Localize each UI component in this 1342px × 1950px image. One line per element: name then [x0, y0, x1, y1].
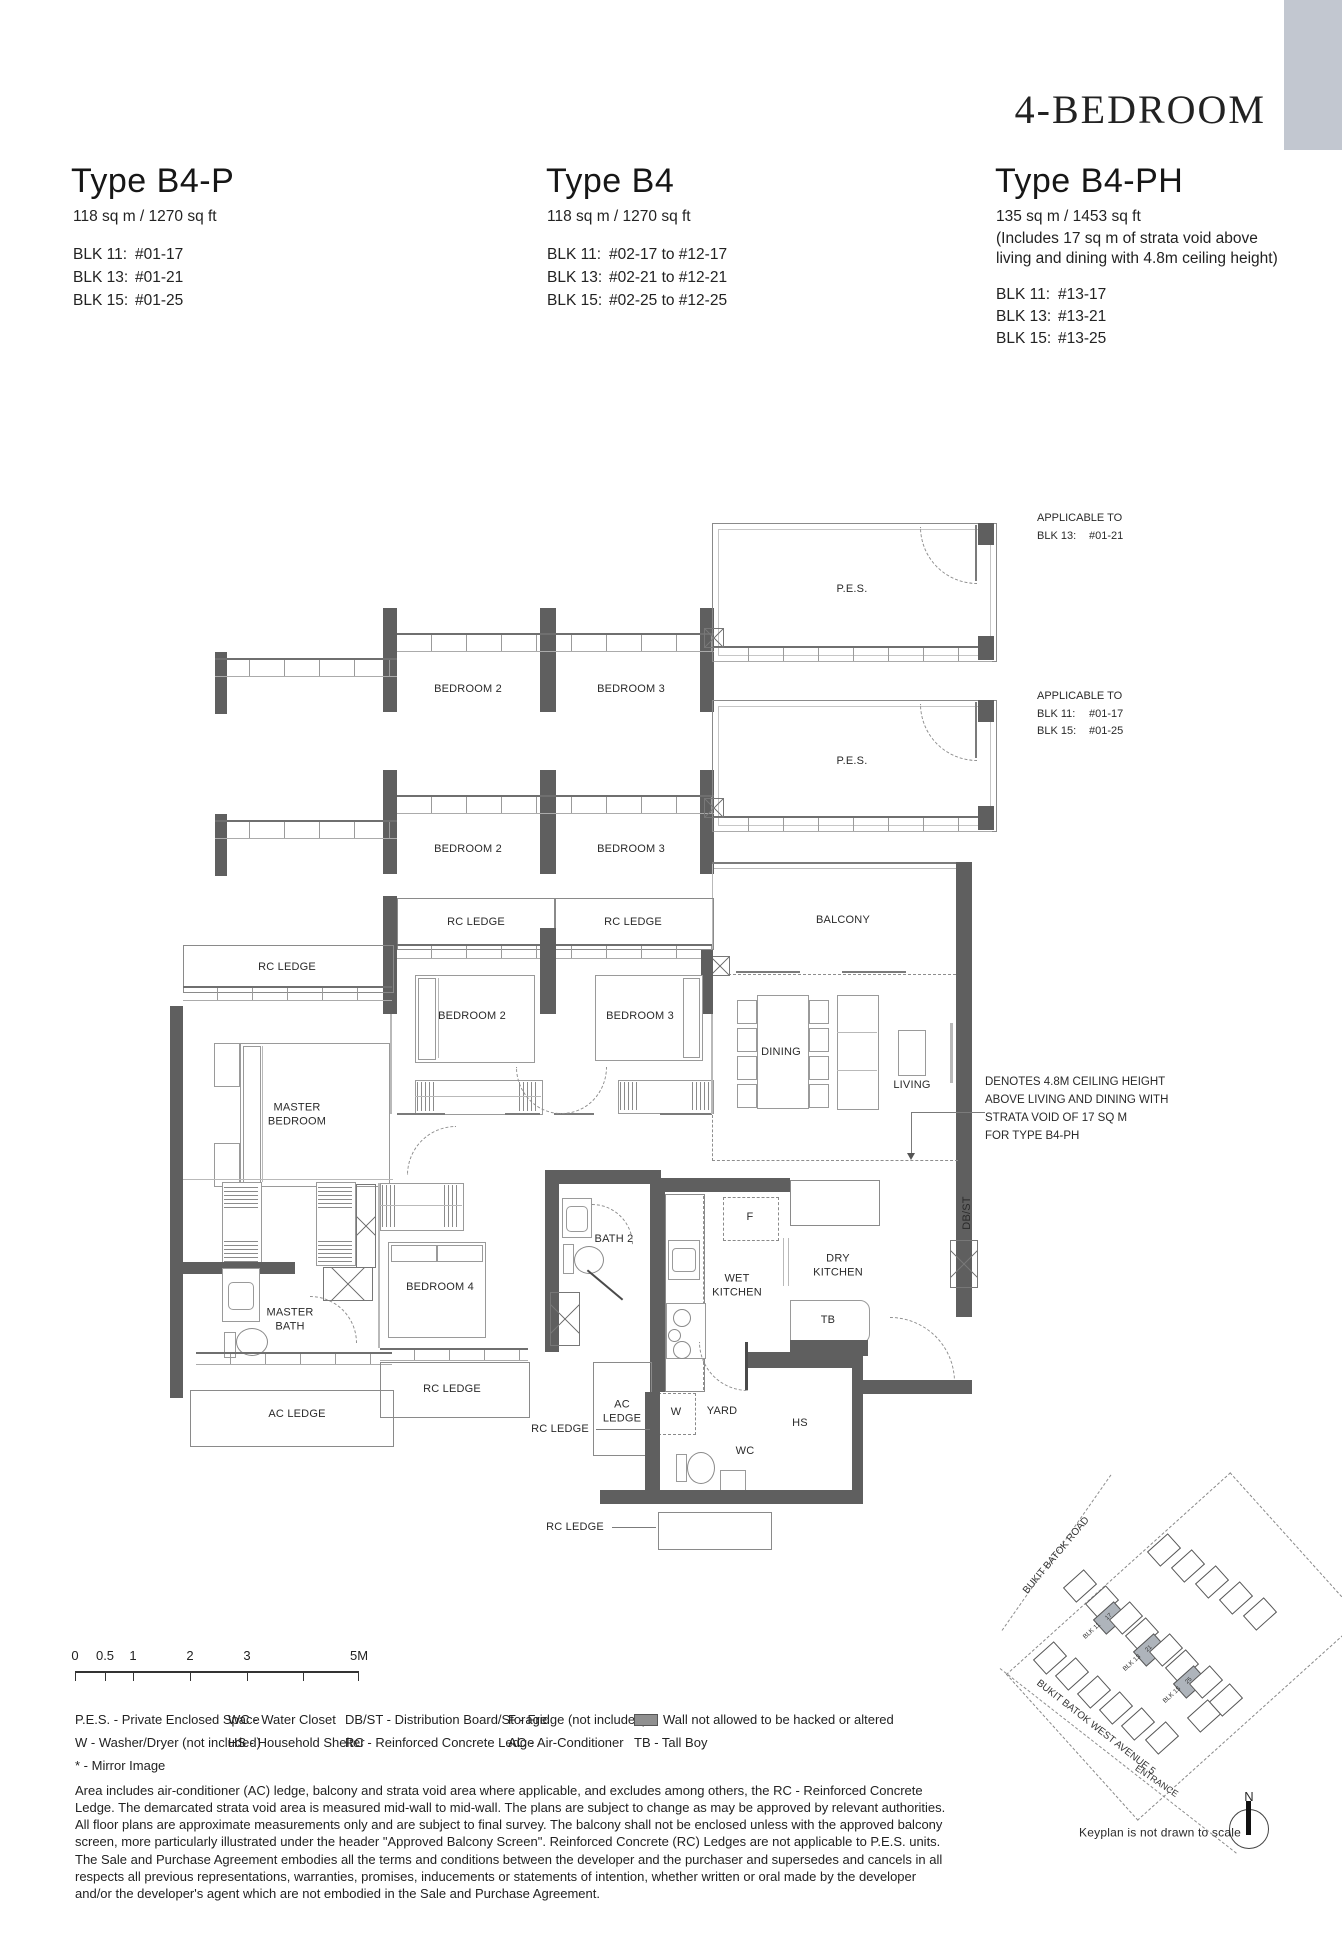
- leader-line: [596, 1429, 650, 1430]
- blk-line: BLK 13:#02-21 to #12-21: [547, 269, 727, 287]
- legend-item-rc: RC - Reinforced Concrete Ledge: [345, 1735, 534, 1750]
- wall-pillar: [540, 928, 556, 1014]
- unit-area-b4: 118 sq m / 1270 sq ft: [547, 208, 691, 226]
- wardrobe-hatch: [444, 1185, 460, 1227]
- sliding-door-panel: [736, 971, 800, 973]
- wall-stub: [978, 700, 994, 722]
- bed-pillow: [683, 978, 700, 1058]
- strata-void-line: [712, 1115, 713, 1161]
- window-band: [714, 816, 992, 832]
- room-label-pes: P.E.S.: [837, 755, 868, 769]
- room-label-master-bedroom: MASTER BEDROOM: [260, 1101, 334, 1129]
- blk-label: BLK 11:: [73, 246, 135, 264]
- label-ac-ledge: AC LEDGE: [268, 1408, 325, 1422]
- mirror-cabinet: [356, 1184, 376, 1268]
- hob-burner: [668, 1329, 681, 1342]
- side-table: [214, 1043, 240, 1087]
- legend-item-ac: AC - Air-Conditioner: [508, 1735, 624, 1750]
- sliding-door-panel: [842, 971, 906, 973]
- ceiling-note-line: DENOTES 4.8M CEILING HEIGHT: [985, 1076, 1165, 1088]
- sliding-door-line: [728, 974, 956, 975]
- blk-line: BLK 15:#13-25: [996, 330, 1106, 348]
- window-band: [215, 658, 397, 677]
- scale-tick: [105, 1671, 106, 1681]
- scale-tick: [190, 1671, 191, 1681]
- room-wall: [660, 1113, 712, 1115]
- scale-tick-label: 5M: [350, 1648, 368, 1663]
- wardrobe-hatch: [224, 1238, 258, 1262]
- toilet-tank: [563, 1244, 574, 1274]
- window-band: [215, 820, 397, 839]
- scale-tick: [133, 1671, 134, 1681]
- ceiling-note-line: STRATA VOID OF 17 SQ M: [985, 1112, 1127, 1124]
- window-band: [183, 986, 392, 1001]
- label-rc-ledge: RC LEDGE: [604, 916, 662, 930]
- room-label-bedroom3: BEDROOM 3: [597, 683, 665, 697]
- dbst-closet: [950, 1240, 978, 1288]
- label-rc-ledge: RC LEDGE: [546, 1521, 604, 1535]
- compass-needle-icon: [1246, 1801, 1251, 1835]
- interior-wall: [645, 1392, 660, 1502]
- coffee-table: [898, 1030, 926, 1076]
- room-label-wc: WC: [736, 1445, 755, 1459]
- label-rc-ledge: RC LEDGE: [531, 1423, 589, 1437]
- legend-item-fridge: F - Fridge (not included): [508, 1712, 647, 1727]
- wardrobe-hatch: [620, 1082, 638, 1110]
- unit-title-b4: Type B4: [546, 162, 674, 201]
- balcony-wall: [712, 862, 972, 864]
- room-wall: [183, 1179, 393, 1180]
- wall-stub: [978, 523, 994, 545]
- leader-arrow-icon: [907, 1153, 915, 1160]
- label-rc-ledge: RC LEDGE: [258, 961, 316, 975]
- dining-chair: [809, 1028, 829, 1052]
- hob-burner: [673, 1341, 691, 1359]
- label-ac-ledge: AC LEDGE: [599, 1398, 645, 1426]
- dining-chair: [809, 1056, 829, 1080]
- dining-chair: [737, 1000, 757, 1024]
- leader-line: [911, 1112, 912, 1156]
- dining-chair: [737, 1056, 757, 1080]
- bed-pillow: [243, 1046, 261, 1184]
- sofa-line: [837, 1032, 877, 1033]
- wall-line: [783, 1238, 784, 1286]
- kitchen-counter: [665, 1194, 705, 1392]
- wall-pillar: [540, 770, 556, 874]
- wardrobe-hatch: [224, 1184, 258, 1208]
- room-wall: [390, 1014, 392, 1114]
- interior-wall: [650, 1178, 790, 1192]
- leader-line: [612, 1527, 656, 1528]
- scale-bar-line: [75, 1671, 359, 1673]
- ceiling-note-line: FOR TYPE B4-PH: [985, 1130, 1079, 1142]
- room-label-dining: DINING: [761, 1046, 801, 1060]
- door-arc: [699, 1342, 748, 1391]
- scale-tick: [358, 1671, 359, 1681]
- wall-swatch-icon: [634, 1714, 658, 1726]
- dining-chair: [737, 1028, 757, 1052]
- scale-tick-label: 2: [186, 1648, 193, 1663]
- tv-console: [950, 1023, 953, 1083]
- door-leaf: [587, 1269, 624, 1300]
- room-wall: [397, 1113, 445, 1115]
- unit-title-b4ph: Type B4-PH: [995, 162, 1183, 201]
- window-band: [380, 1348, 528, 1361]
- compass-north-label: N: [1244, 1789, 1254, 1805]
- category-title: 4-BEDROOM: [998, 86, 1266, 133]
- scale-tick-label: 0.5: [96, 1648, 114, 1663]
- room-label-living: LIVING: [893, 1079, 930, 1093]
- label-tall-boy: TB: [821, 1314, 835, 1328]
- applicable-note-1: APPLICABLE TO BLK 13:#01-21: [1037, 510, 1123, 545]
- scale-tick: [247, 1671, 248, 1681]
- scale-tick-label: 3: [243, 1648, 250, 1663]
- page-accent-bar: [1284, 0, 1342, 150]
- ac-window-icon: [704, 628, 724, 648]
- disclaimer-text: Area includes air-conditioner (AC) ledge…: [75, 1782, 953, 1902]
- room-wall: [378, 1183, 380, 1348]
- blk-line: BLK 15:#02-25 to #12-25: [547, 292, 727, 310]
- sofa-line: [837, 1070, 877, 1071]
- entrance-door-arc: [890, 1317, 955, 1382]
- balcony-wall-inner: [714, 868, 970, 869]
- window-band: [397, 795, 714, 814]
- exterior-wall: [170, 1264, 183, 1398]
- blk-value: #01-17: [135, 246, 183, 264]
- room-label-dry-kitchen: DRY KITCHEN: [804, 1252, 872, 1280]
- window-band: [714, 646, 992, 662]
- room-label-balcony: BALCONY: [816, 914, 870, 928]
- shower: [323, 1267, 373, 1301]
- interior-wall: [650, 1192, 665, 1392]
- wall-pillar: [540, 608, 556, 712]
- dining-chair: [809, 1084, 829, 1108]
- room-label-bedroom2: BEDROOM 2: [434, 843, 502, 857]
- window-band: [397, 633, 714, 652]
- wardrobe-hatch: [692, 1082, 710, 1110]
- ac-window-icon: [704, 798, 724, 818]
- dining-chair: [809, 1000, 829, 1024]
- exterior-wall: [170, 1006, 183, 1264]
- unit-area-note: living and dining with 4.8m ceiling heig…: [996, 250, 1278, 268]
- blk-line: BLK 15:#01-25: [73, 292, 183, 310]
- legend-item-tb: TB - Tall Boy: [634, 1735, 707, 1750]
- unit-area-b4p: 118 sq m / 1270 sq ft: [73, 208, 217, 226]
- bed-pillow: [437, 1245, 483, 1262]
- side-table: [214, 1143, 240, 1187]
- hs-wall: [748, 1352, 863, 1368]
- dry-kitchen-counter: [790, 1180, 880, 1226]
- unit-area-note: (Includes 17 sq m of strata void above: [996, 230, 1258, 248]
- blk-line: BLK 11:#13-17: [996, 286, 1106, 304]
- label-washer: W: [671, 1406, 682, 1420]
- bed-pillow: [391, 1245, 437, 1262]
- dining-chair: [737, 1084, 757, 1108]
- applicable-note-2: APPLICABLE TO BLK 11:#01-17 BLK 15:#01-2…: [1037, 688, 1123, 741]
- blk-line: BLK 13:#13-21: [996, 308, 1106, 326]
- room-label-wet-kitchen: WET KITCHEN: [705, 1272, 769, 1300]
- sink: [566, 1206, 588, 1232]
- scale-tick-label: 1: [129, 1648, 136, 1663]
- door-arc: [310, 1296, 357, 1343]
- legend-item-wall: Wall not allowed to be hacked or altered: [663, 1712, 894, 1727]
- keyplan-caption: Keyplan is not drawn to scale: [1079, 1826, 1241, 1841]
- wardrobe-hatch: [318, 1238, 352, 1262]
- room-label-pes: P.E.S.: [837, 583, 868, 597]
- room-label-bedroom3: BEDROOM 3: [606, 1010, 674, 1024]
- wardrobe-hatch: [382, 1185, 398, 1227]
- wardrobe-hatch: [318, 1184, 352, 1208]
- label-fridge: F: [747, 1211, 754, 1225]
- label-rc-ledge: RC LEDGE: [447, 916, 505, 930]
- wardrobe-line: [415, 1096, 541, 1097]
- unit-title-b4p: Type B4-P: [71, 162, 234, 201]
- room-label-bedroom2: BEDROOM 2: [438, 1010, 506, 1024]
- exterior-wall: [600, 1490, 863, 1504]
- legend-item-mirror: * - Mirror Image: [75, 1758, 165, 1773]
- sink: [720, 1470, 746, 1492]
- kitchen-sink-basin: [672, 1248, 696, 1272]
- scale-tick: [303, 1671, 304, 1681]
- leader-line: [911, 1112, 985, 1113]
- blk-line: BLK 11:#01-17: [73, 246, 183, 264]
- wardrobe-line: [380, 1205, 462, 1206]
- label-rc-ledge: RC LEDGE: [423, 1383, 481, 1397]
- door-arc: [592, 1204, 633, 1245]
- ceiling-note-line: ABOVE LIVING AND DINING WITH: [985, 1094, 1168, 1106]
- interior-wall: [863, 1380, 972, 1394]
- window-band: [196, 1352, 392, 1365]
- interior-wall: [545, 1170, 661, 1184]
- unit-area-b4ph: 135 sq m / 1453 sq ft: [996, 208, 1141, 226]
- room-label-bedroom2: BEDROOM 2: [434, 683, 502, 697]
- scale-tick: [75, 1671, 76, 1681]
- bed-pillow: [418, 978, 436, 1060]
- hs-wall: [852, 1352, 863, 1502]
- floorplan-page: 4-BEDROOM Type B4-P 118 sq m / 1270 sq f…: [0, 0, 1342, 1950]
- label-dbst: DB/ST: [961, 1196, 975, 1229]
- room-label-yard: YARD: [707, 1405, 738, 1419]
- ac-window-icon: [710, 956, 730, 976]
- wall-stub: [978, 806, 994, 830]
- sink: [228, 1282, 254, 1310]
- toilet-bowl: [687, 1452, 715, 1484]
- blk-line: BLK 13:#01-21: [73, 269, 183, 287]
- room-label-bedroom4: BEDROOM 4: [406, 1281, 474, 1295]
- strata-void-line: [712, 1160, 958, 1161]
- wall-stub: [978, 636, 994, 660]
- rc-ledge-outline: [658, 1512, 772, 1550]
- scale-tick-label: 0: [71, 1648, 78, 1663]
- toilet-tank: [676, 1454, 687, 1482]
- room-label-bedroom3: BEDROOM 3: [597, 843, 665, 857]
- shower: [550, 1292, 580, 1346]
- legend-item-wc: WC - Water Closet: [228, 1712, 336, 1727]
- room-wall: [505, 1113, 540, 1115]
- blk-line: BLK 11:#02-17 to #12-17: [547, 246, 727, 264]
- room-label-hs: HS: [792, 1417, 808, 1431]
- wall-line: [788, 1238, 789, 1286]
- room-wall: [711, 1014, 713, 1114]
- door-arc: [407, 1126, 456, 1175]
- hob-burner: [673, 1309, 691, 1327]
- door-arc: [562, 1067, 607, 1114]
- sofa: [837, 995, 879, 1110]
